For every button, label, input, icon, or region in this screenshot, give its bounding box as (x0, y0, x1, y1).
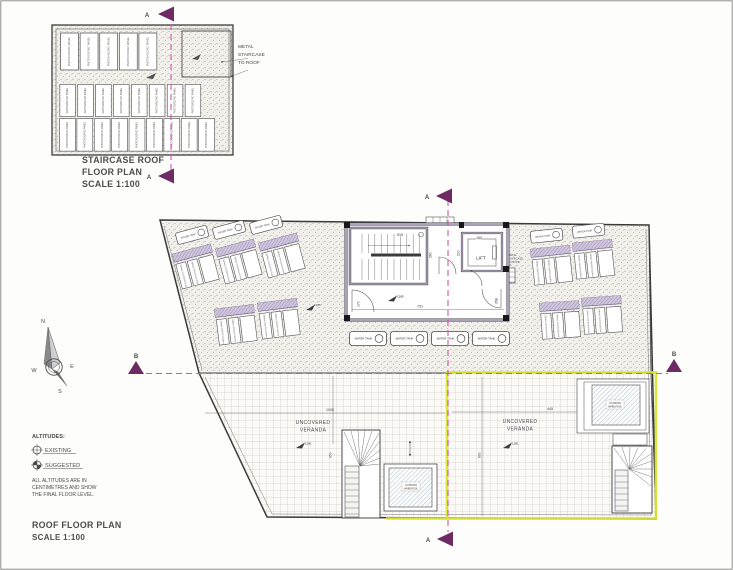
solar-panel-unit (572, 239, 616, 279)
compass-south: S (58, 389, 62, 395)
legend-note-line2: CENTIMETRES AND SHOW (32, 485, 97, 491)
architectural-drawing-sheet: PHOTOVOLTAIC PANEL WATER TANK PHOTOVOLTA… (0, 0, 733, 570)
legend-suggested: SUGGESTED (45, 463, 80, 469)
veranda-label-line2: VERANDA (300, 428, 327, 434)
altitude-hall: 1285 (397, 295, 404, 299)
pv-panel (96, 84, 112, 116)
whirlpool-label-line2: WHIRLPOOL (608, 407, 623, 409)
pv-panel (139, 33, 157, 70)
pv-panel (78, 84, 94, 116)
compass-north: N (41, 319, 45, 325)
pv-panel (164, 118, 180, 151)
water-tank (432, 332, 469, 346)
altitude-veranda-left: 1281 (305, 442, 312, 446)
legend-note-line3: THE FINAL FLOOR LEVEL. (32, 492, 94, 498)
dim-stair-width: 519 (397, 233, 403, 237)
metal-staircase-line2: STAIRCASE (238, 52, 265, 58)
solar-panel-unit (214, 304, 258, 345)
water-tank (350, 332, 387, 346)
dim-door-right: 358 (495, 298, 499, 304)
pv-panel (149, 84, 165, 116)
solar-panel-unit (539, 300, 581, 339)
pv-panel (119, 33, 137, 70)
veranda-stair-left (342, 430, 380, 518)
pv-panel (131, 84, 147, 116)
metal-staircase-line2: STAIRCASE (508, 257, 523, 261)
altitude-veranda-right: 1281 (512, 442, 519, 446)
dim-veranda-left-depth: 650 (329, 452, 333, 458)
drawing-canvas: PHOTOVOLTAIC PANEL WATER TANK PHOTOVOLTA… (0, 0, 733, 570)
water-tank (391, 332, 428, 346)
dim-door-left: 170 (357, 301, 361, 307)
whirlpool-label-line1: OUTDOOR (609, 403, 621, 405)
pv-panel (114, 84, 130, 116)
pv-panel (112, 118, 128, 151)
metal-staircase-line1: METAL (238, 44, 254, 50)
compass-west: W (31, 368, 37, 374)
section-a-letter: A (425, 195, 430, 201)
solar-panel-unit (581, 295, 623, 334)
dim-stair-depth: 260 (429, 252, 433, 258)
staircase-plan-title-line3: SCALE 1:100 (82, 179, 140, 189)
dim-lift-width: 160 (476, 236, 482, 240)
dim-hall-width: 731 (417, 305, 423, 309)
staircase-plan-title-line1: STAIRCASE ROOF (82, 155, 165, 165)
whirlpool-step (613, 434, 647, 445)
pv-panel (167, 84, 183, 116)
stair-handrail (371, 254, 421, 257)
pv-panel (61, 33, 79, 70)
metal-staircase-line3: TO ROOF (508, 260, 521, 264)
lift-label: LIFT (476, 256, 486, 261)
section-b-letter: B (134, 354, 139, 360)
dim-lift-depth: 200 (457, 250, 461, 256)
metal-staircase-line3: TO ROOF (238, 60, 260, 66)
pv-panel (94, 118, 110, 151)
pv-panel (59, 118, 75, 151)
veranda-stair-right (612, 446, 652, 513)
whirlpool-label-line1: OUTDOOR (405, 485, 417, 487)
section-a-letter: A (147, 175, 152, 181)
pv-panel (77, 118, 93, 151)
veranda-label-line1: UNCOVERED (296, 420, 331, 426)
whirlpool-label-line2: WHIRLPOOL (404, 489, 419, 491)
section-a-letter: A (426, 538, 431, 544)
section-a-letter: A (145, 13, 150, 19)
compass-east: E (70, 364, 74, 370)
water-tank (473, 332, 510, 346)
stair-flight (345, 466, 359, 517)
solar-panel-unit (257, 298, 301, 339)
pv-panel (199, 118, 215, 151)
pv-panel (80, 33, 98, 70)
dim-veranda-right-depth: 690 (478, 452, 482, 458)
dim-veranda-right-width: 445 (547, 407, 553, 411)
solar-panel-unit (530, 245, 574, 285)
legend-title: ALTITUDES: (32, 434, 65, 440)
pv-panel (129, 118, 145, 151)
veranda-label-line1: UNCOVERED (503, 419, 538, 425)
legend-existing: EXISTING (45, 448, 71, 454)
pv-panel (181, 118, 197, 151)
whirlpool-left: OUTDOOR WHIRLPOOL (384, 464, 437, 511)
building-core: LIFT (344, 217, 509, 321)
veranda-label-line2: VERANDA (507, 427, 534, 433)
pv-panel (185, 84, 201, 116)
pv-panel (100, 33, 118, 70)
roof-plan-title-line2: SCALE 1:100 (32, 533, 85, 542)
legend-note-line1: ALL ALTITUDES ARE IN (32, 478, 87, 484)
staircase-plan-title-line2: FLOOR PLAN (82, 167, 142, 177)
altitude-terrace: 1285 (314, 303, 321, 307)
pv-panel (60, 84, 76, 116)
pv-panel (146, 118, 162, 151)
section-b-letter: B (672, 352, 677, 358)
roof-plan-title-line1: ROOF FLOOR PLAN (32, 520, 122, 530)
